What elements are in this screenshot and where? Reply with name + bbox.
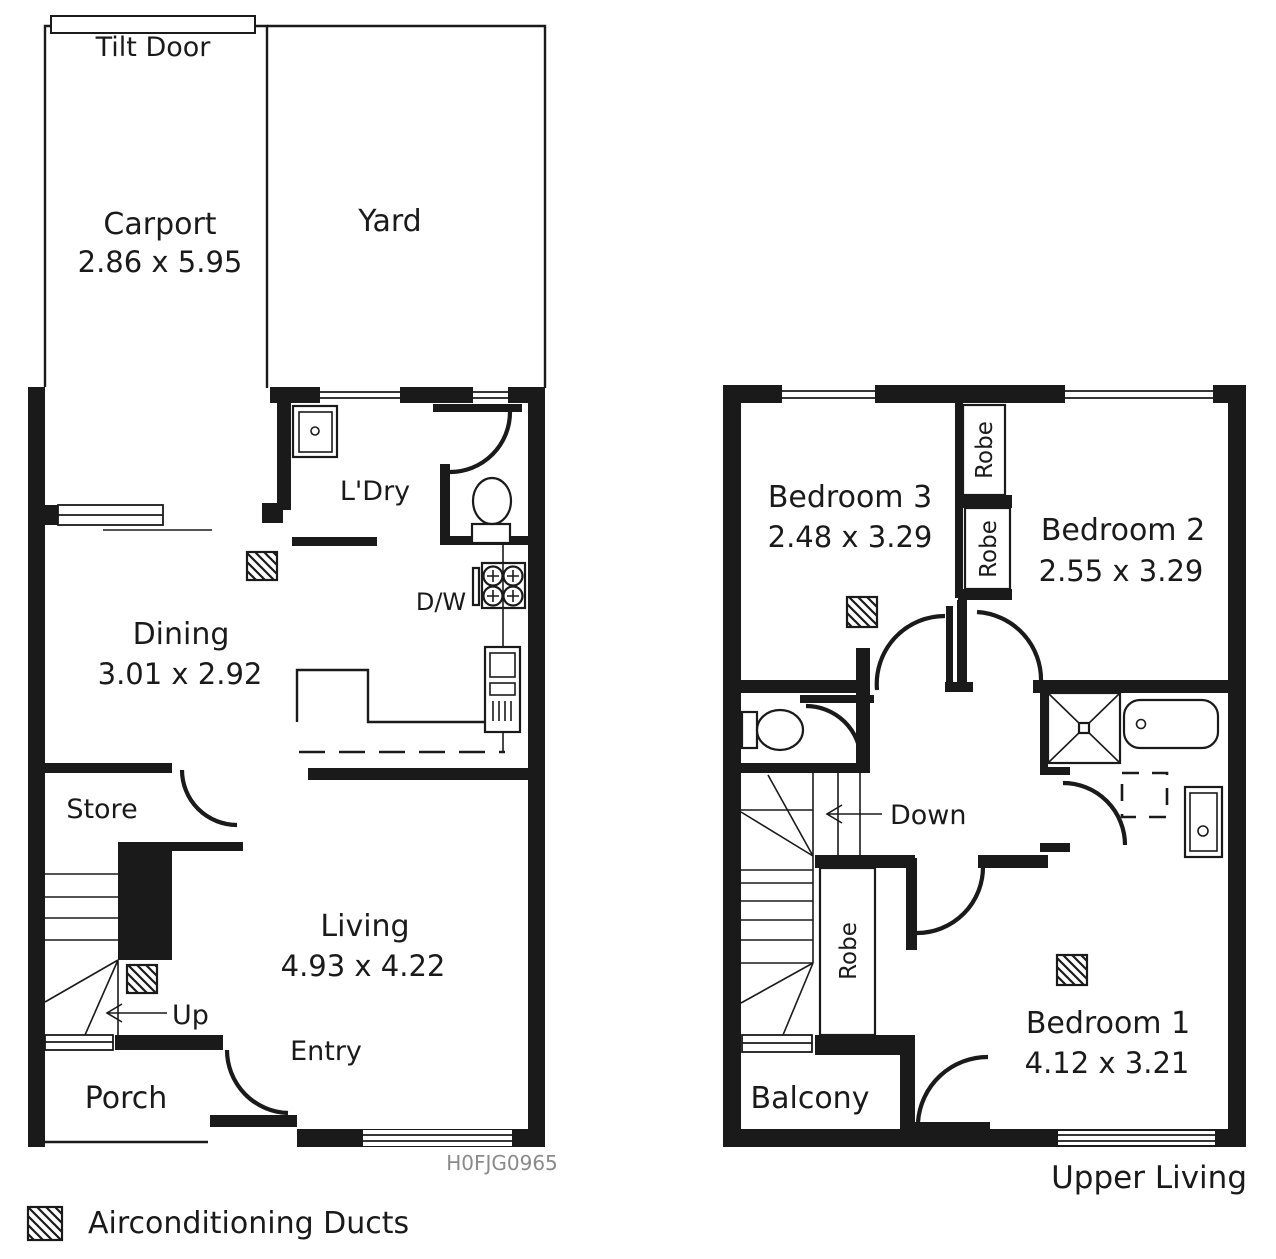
- floorplan-page: Tilt Door Carport 2.86 x 5.95 Yard L'Dry…: [0, 0, 1276, 1259]
- upper-living-caption: Upper Living: [1051, 1160, 1247, 1196]
- laundry-tub: [293, 406, 337, 457]
- down-label: Down: [890, 800, 967, 831]
- living-dims: 4.93 x 4.22: [281, 949, 446, 983]
- shower: [1048, 693, 1120, 763]
- tilt-door-panel: [51, 16, 255, 33]
- balcony-label: Balcony: [751, 1081, 870, 1116]
- aircon-duct-icon: [1057, 955, 1087, 985]
- floorplan-drawing: Tilt Door Carport 2.86 x 5.95 Yard L'Dry…: [0, 0, 1276, 1259]
- toilet-upper: [742, 710, 803, 750]
- robe-bed3-label: Robe: [972, 421, 998, 479]
- tilt-door-label: Tilt Door: [95, 32, 212, 63]
- dining-dims: 3.01 x 2.92: [98, 657, 263, 691]
- plan-code: H0FJG0965: [446, 1151, 558, 1175]
- kitchen-sink: [485, 647, 520, 732]
- living-label: Living: [320, 909, 409, 944]
- yard-label: Yard: [357, 204, 421, 239]
- store-label: Store: [66, 794, 137, 825]
- aircon-duct-icon: [247, 552, 277, 580]
- bedroom2-dims: 2.55 x 3.29: [1039, 554, 1204, 588]
- dishwasher-unit: [473, 568, 479, 605]
- bedroom1-label: Bedroom 1: [1026, 1006, 1190, 1041]
- carport-dims: 2.86 x 5.95: [78, 245, 243, 279]
- dishwasher-label: D/W: [416, 588, 466, 616]
- vanity: [1185, 787, 1222, 857]
- legend-label: Airconditioning Ducts: [88, 1206, 409, 1241]
- toilet: [472, 478, 511, 543]
- bedroom3-label: Bedroom 3: [768, 480, 932, 515]
- laundry-label: L'Dry: [340, 476, 410, 507]
- up-label: Up: [172, 1000, 209, 1031]
- aircon-duct-icon: [127, 965, 157, 993]
- carport-label: Carport: [103, 207, 216, 242]
- aircon-duct-legend-icon: [28, 1207, 62, 1240]
- bedroom3-dims: 2.48 x 3.29: [768, 520, 933, 554]
- robe-bed1-label: Robe: [836, 922, 862, 980]
- dining-label: Dining: [133, 617, 230, 652]
- bedroom1-dims: 4.12 x 3.21: [1025, 1046, 1190, 1080]
- robe-bed2-label: Robe: [976, 520, 1002, 578]
- entry-label: Entry: [290, 1036, 362, 1067]
- bedroom2-label: Bedroom 2: [1041, 513, 1205, 548]
- bathtub: [1124, 700, 1218, 748]
- porch-label: Porch: [85, 1081, 168, 1116]
- aircon-duct-icon: [847, 597, 877, 627]
